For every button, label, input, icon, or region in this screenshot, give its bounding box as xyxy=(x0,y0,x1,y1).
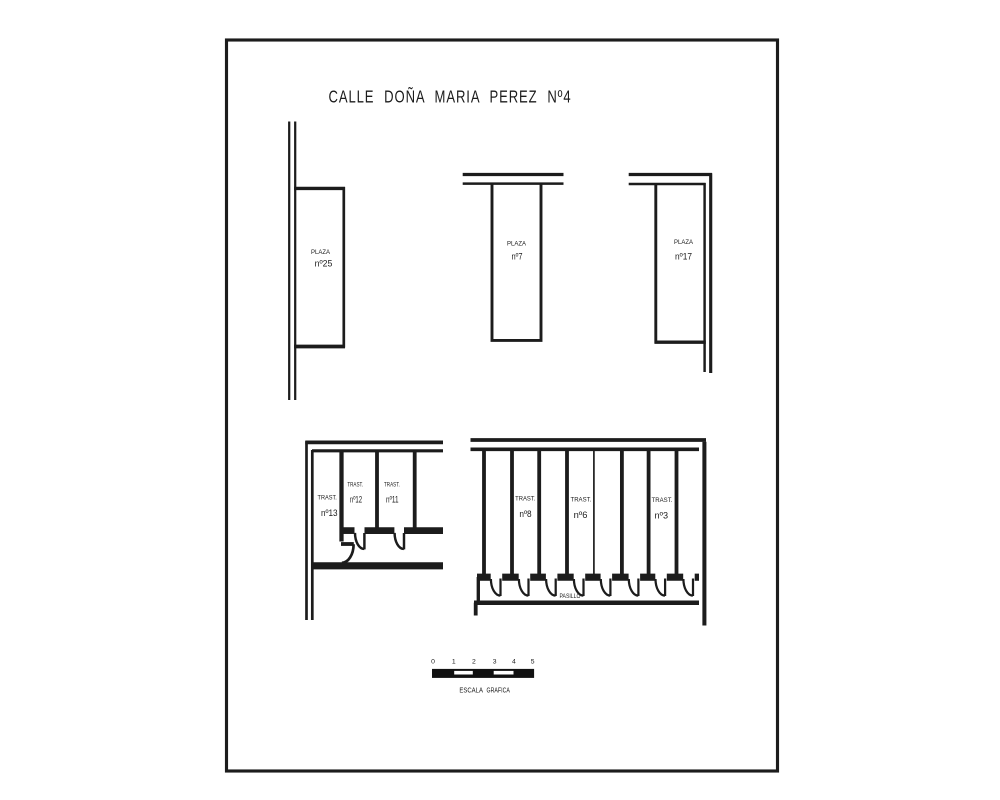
svg-text:4: 4 xyxy=(512,659,516,666)
svg-text:nº12: nº12 xyxy=(350,495,362,505)
svg-text:nº6: nº6 xyxy=(574,510,588,520)
svg-text:GRAFICA: GRAFICA xyxy=(487,686,510,695)
svg-text:PLAZA: PLAZA xyxy=(674,239,693,246)
svg-text:2: 2 xyxy=(472,659,476,666)
svg-text:nº17: nº17 xyxy=(675,252,692,262)
svg-text:nº8: nº8 xyxy=(519,509,531,519)
svg-text:TRAST.: TRAST. xyxy=(318,494,337,501)
svg-text:nº3: nº3 xyxy=(655,511,669,521)
svg-text:TRAST.: TRAST. xyxy=(652,497,673,504)
svg-text:5: 5 xyxy=(531,659,535,666)
svg-text:nº11: nº11 xyxy=(386,495,399,505)
svg-text:PLAZA: PLAZA xyxy=(311,249,330,256)
svg-text:nº13: nº13 xyxy=(321,508,338,518)
svg-text:PLAZA: PLAZA xyxy=(507,241,526,248)
svg-text:nº25: nº25 xyxy=(315,259,333,269)
svg-text:TRAST.: TRAST. xyxy=(384,482,400,489)
svg-text:ESCALA: ESCALA xyxy=(459,686,483,695)
svg-text:TRAST.: TRAST. xyxy=(571,496,592,503)
svg-text:CALLE DOÑA MARIA PEREZ Nº4: CALLE DOÑA MARIA PEREZ Nº4 xyxy=(329,86,572,107)
svg-text:TRAST.: TRAST. xyxy=(347,482,363,489)
svg-text:3: 3 xyxy=(493,659,497,666)
svg-text:nº7: nº7 xyxy=(512,252,523,262)
svg-text:PASILLO: PASILLO xyxy=(560,593,581,600)
svg-text:TRAST.: TRAST. xyxy=(515,495,535,502)
svg-text:0: 0 xyxy=(431,659,435,666)
svg-text:1: 1 xyxy=(452,659,456,666)
